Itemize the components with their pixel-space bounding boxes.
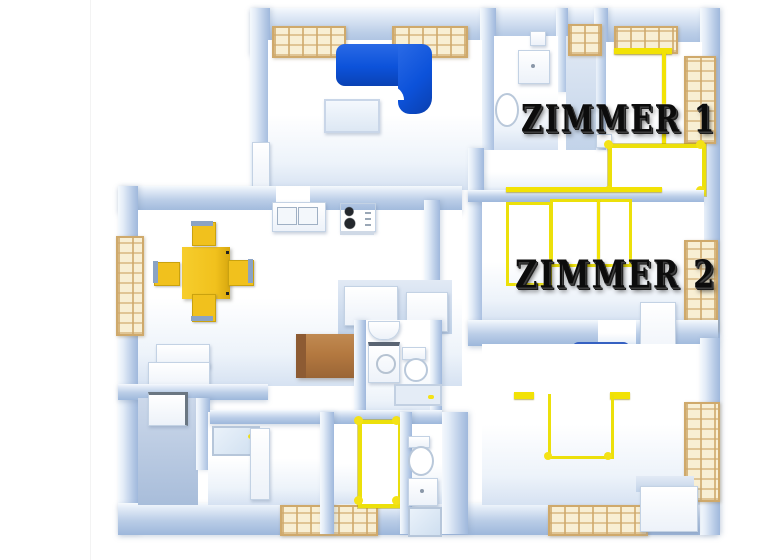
microwave-cabinet (148, 392, 188, 426)
wood-window-hall (568, 24, 602, 56)
bathroom1-toilet (495, 93, 519, 127)
dining-chair-right (228, 260, 254, 286)
chair-back (153, 261, 158, 283)
yellow-bed-frame-small (358, 420, 402, 508)
zimmer2-yellow-beam (506, 187, 662, 192)
sofa-corner (398, 44, 432, 114)
kitchen-sink-counter (272, 202, 326, 232)
kitchen-sink-basin (298, 207, 318, 225)
wall-bath2-right (442, 412, 468, 534)
wood-window-living-1 (272, 26, 346, 58)
washer-door (376, 354, 396, 374)
dining-table-foot (226, 251, 229, 254)
white-shower-box (640, 486, 698, 532)
chair-back (248, 259, 253, 283)
tall-cabinet (250, 428, 270, 500)
bed-knob (604, 452, 612, 460)
sofa-seat-horizontal (336, 44, 402, 86)
shower-tray-2 (408, 507, 442, 537)
wall-bedroom-left (320, 412, 334, 534)
zimmer2-label: ZIMMER 2 (515, 253, 716, 298)
stove-control-strip (340, 231, 374, 235)
yellow-bed-u-frame (548, 394, 614, 459)
floorplan-render: ZIMMER 1 ZIMMER 2 (0, 0, 780, 560)
wood-window-wing-left (116, 236, 144, 336)
living-room-door (252, 142, 270, 190)
dining-chair-left (154, 262, 180, 286)
marker-yellow (428, 395, 434, 399)
wall-bath-inner-left (354, 320, 366, 418)
dining-table-foot (226, 292, 229, 295)
dining-chair-top (192, 222, 216, 246)
stove (340, 203, 376, 232)
bed-knob (604, 140, 613, 149)
wood-window-bottom-2 (548, 505, 648, 536)
dining-chair-bottom (192, 294, 216, 322)
chair-back (191, 316, 213, 321)
bed-knob (544, 452, 552, 460)
background-seam (90, 0, 91, 560)
toilet3-bowl (408, 446, 434, 476)
bed-knob (696, 140, 705, 149)
coffee-table (324, 99, 380, 133)
bath-inner-mat (394, 384, 442, 406)
chair-back (191, 221, 213, 226)
sink-drain (420, 489, 424, 493)
yellow-rail-stub-left (514, 392, 534, 399)
zimmer1-label: ZIMMER 1 (521, 97, 716, 141)
dining-table (182, 247, 230, 299)
bathroom1-shelf (530, 31, 546, 46)
toilet2-bowl (404, 358, 428, 382)
zimmer2-wardrobe-divider (597, 200, 600, 260)
stove-knobs (365, 208, 371, 226)
washing-machine (368, 342, 400, 383)
bed-knob (354, 416, 363, 425)
kitchen-sink-basin (277, 207, 297, 225)
bed-knob (354, 496, 363, 505)
bathroom1-sink-drain (531, 64, 535, 68)
bath2-sink (408, 478, 438, 506)
